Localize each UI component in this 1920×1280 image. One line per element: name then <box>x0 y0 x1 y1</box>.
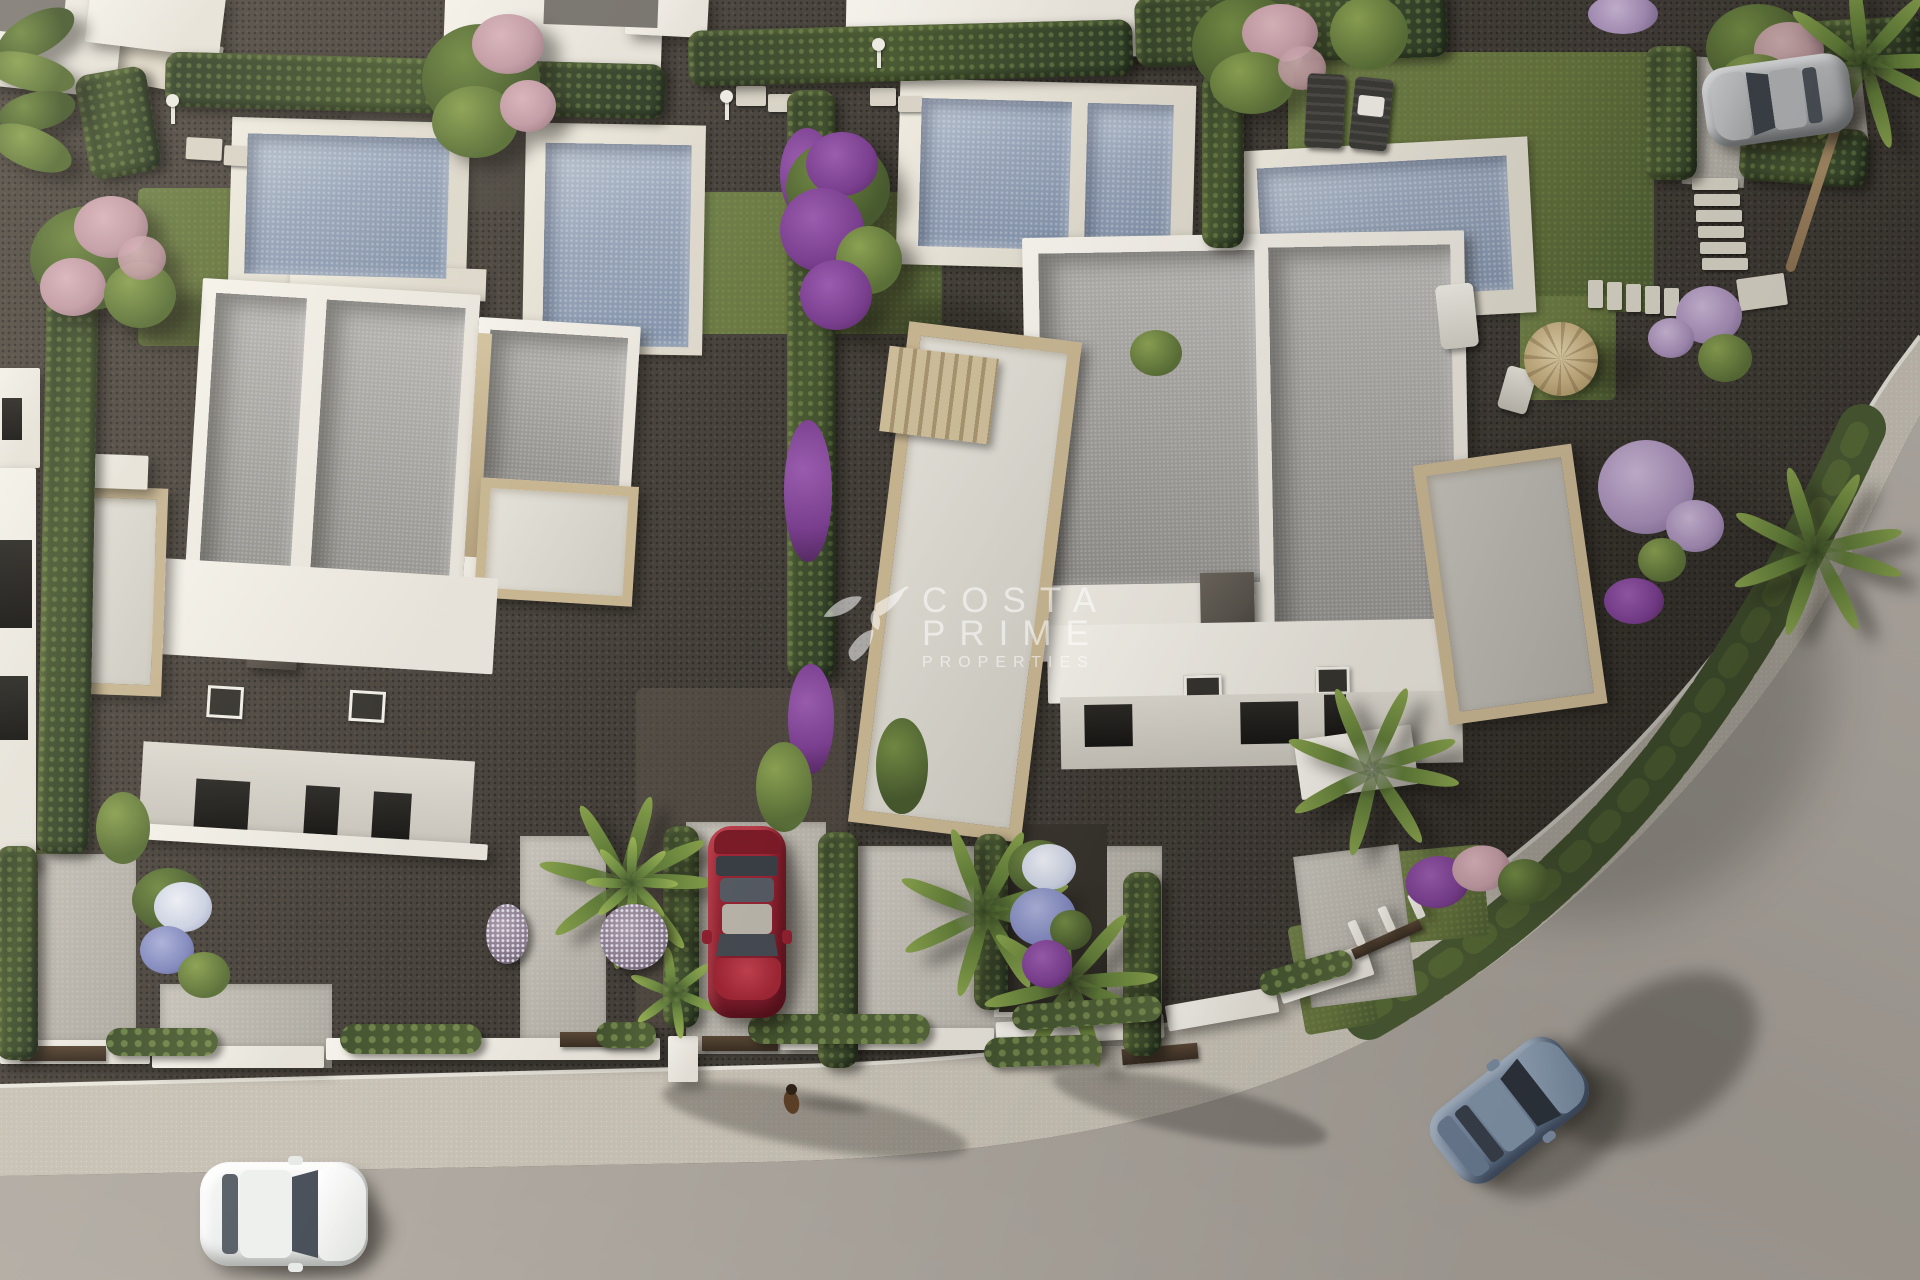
car-mirror <box>288 1156 303 1165</box>
window <box>371 791 412 843</box>
car-rear <box>714 830 780 854</box>
topiary-ball <box>486 904 528 964</box>
gate-pillar <box>668 1036 698 1082</box>
flower-bed-white <box>128 864 240 1006</box>
green-bush <box>1130 330 1182 376</box>
stepping-stone <box>1607 282 1622 310</box>
stepping-stone <box>870 88 896 106</box>
bush-row <box>340 1024 482 1054</box>
sun-lounger <box>1304 73 1346 149</box>
roof-panel <box>481 330 628 486</box>
car-silver <box>1700 52 1870 162</box>
skylight <box>348 690 386 723</box>
car-blue <box>1410 1024 1610 1214</box>
hedge-column <box>1645 46 1697 180</box>
green-bush <box>1638 538 1686 582</box>
car-hood <box>713 958 781 1000</box>
roof-panel <box>308 300 465 610</box>
green-tree <box>1326 0 1412 78</box>
deck-lounger <box>1435 282 1479 350</box>
car-hood <box>318 1167 366 1261</box>
topiary-ball <box>600 904 668 970</box>
roof-panel <box>198 293 307 600</box>
car-windshield <box>716 934 778 956</box>
towel <box>1357 95 1385 118</box>
green-bush <box>1698 334 1752 382</box>
green-bush <box>756 742 812 832</box>
stepping-stone <box>1692 178 1738 190</box>
banana-tree <box>0 6 98 184</box>
lilac-bush <box>1648 318 1694 358</box>
palm-tree <box>1700 428 1920 663</box>
stepping-stone <box>898 96 922 112</box>
stepping-stone <box>736 86 766 106</box>
car-interior <box>722 904 772 934</box>
stepping-stone <box>1702 258 1748 270</box>
stepping-stone <box>185 137 222 161</box>
watermark: COSTA PRIME PROPERTIES <box>818 584 1110 684</box>
car-sunroof <box>720 878 774 902</box>
stepping-stone <box>1698 226 1744 238</box>
hedge-column <box>0 846 38 1060</box>
pool-water <box>918 98 1072 250</box>
flower-bush <box>1604 578 1664 624</box>
car-white <box>200 1158 380 1278</box>
skylight <box>206 685 244 719</box>
travertine-terrace <box>474 477 639 606</box>
hedge-row <box>687 19 1133 87</box>
neighbor-window <box>2 398 22 440</box>
palm-tree <box>1268 648 1478 878</box>
bougainvillea <box>784 420 832 562</box>
hummingbird-icon <box>818 584 910 684</box>
bush-row <box>106 1028 218 1056</box>
car-mirror <box>288 1263 303 1272</box>
window <box>303 785 340 835</box>
lower-terrace <box>145 557 498 674</box>
car-red <box>708 826 800 1026</box>
flower-bed-hydrangea <box>1000 834 1100 994</box>
watermark-line3: PROPERTIES <box>922 655 1110 671</box>
green-bush <box>876 718 928 814</box>
stepping-stone <box>1694 194 1740 206</box>
stepping-stone <box>1645 286 1660 314</box>
stepping-stone <box>1588 280 1603 308</box>
stepping-stone <box>1696 210 1742 222</box>
car-mirror <box>702 930 712 944</box>
watermark-text: COSTA PRIME PROPERTIES <box>922 584 1110 671</box>
bush-row <box>984 1034 1103 1068</box>
neighbor-window <box>0 540 32 628</box>
stepping-stone <box>1700 242 1746 254</box>
neighbor-building <box>0 468 36 868</box>
stepping-stone <box>1626 284 1641 312</box>
pergola-slats <box>879 346 999 445</box>
car-rear-window <box>222 1174 238 1254</box>
car-mirror <box>782 930 792 944</box>
watermark-line1: COSTA <box>922 584 1110 617</box>
aerial-render-scene: COSTA PRIME PROPERTIES <box>0 0 1920 1280</box>
pink-flowering-tree <box>412 14 572 174</box>
car-windshield <box>292 1170 318 1258</box>
purple-flowering-tree <box>770 130 912 342</box>
stepping-stone <box>1736 273 1788 311</box>
pool-water <box>1084 103 1174 243</box>
car-rear-window <box>716 856 778 876</box>
pink-flowering-tree <box>22 192 190 348</box>
green-bush <box>96 792 150 864</box>
neighbor-window <box>0 676 28 740</box>
watermark-line2: PRIME <box>922 617 1110 650</box>
flower-bed-pink <box>1394 834 1560 938</box>
car-roof <box>240 1170 292 1258</box>
window <box>1084 704 1133 747</box>
straw-parasol <box>1524 322 1598 396</box>
